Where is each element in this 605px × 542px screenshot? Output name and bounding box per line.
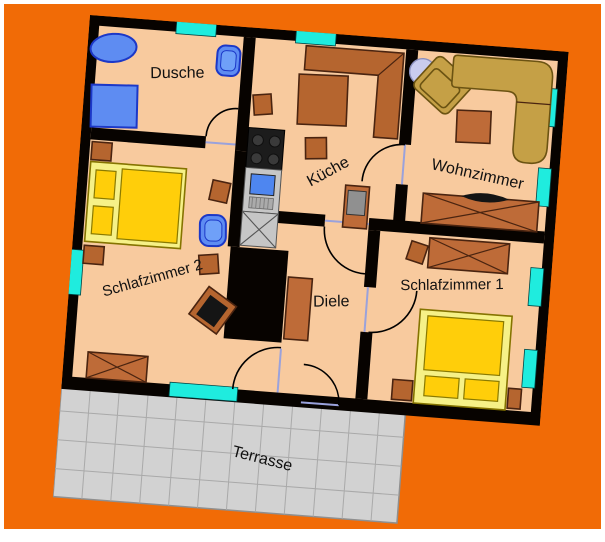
hall-cabinet-front [346, 190, 366, 215]
stove-burner-icon [268, 154, 280, 166]
pillow-icon [424, 376, 459, 399]
bed-mattress [424, 316, 504, 376]
chimney-block [224, 246, 289, 342]
stool-icon [253, 94, 272, 115]
shower-icon [91, 85, 138, 128]
pillow-icon [464, 379, 499, 402]
stove-icon [246, 128, 285, 171]
room-label-dusche: Dusche [150, 65, 205, 83]
nightstand-icon [507, 388, 521, 409]
pillow-icon [94, 170, 116, 199]
sink-basin-icon [250, 174, 275, 196]
hall-wardrobe-icon [284, 277, 313, 341]
coffee-table-icon [456, 110, 491, 143]
window-right-schlafzimmer1-2 [522, 349, 538, 388]
kitchen-table-icon [297, 74, 348, 126]
toilet-seat-icon [220, 50, 236, 71]
pillow-icon [91, 206, 113, 235]
window-right-schlafzimmer1-1 [528, 268, 544, 307]
window-right-wohnzimmer-2 [536, 168, 552, 207]
stool-icon [209, 180, 231, 203]
stove-burner-icon [252, 134, 264, 146]
stove-burner-icon [251, 152, 263, 164]
room-label-diele: Diele [313, 293, 350, 310]
floor-plan: Terrasse [52, 15, 568, 542]
stove-burner-icon [269, 136, 281, 148]
floor-plan-drawing: Terrasse [52, 15, 568, 542]
bed-mattress [117, 169, 182, 243]
room-label-schlafzimmer1: Schlafzimmer 1 [400, 276, 504, 294]
nightstand-icon [83, 245, 104, 264]
page: Terrasse [0, 0, 605, 533]
nightstand-icon [391, 379, 412, 400]
wash-basin-inner [205, 220, 222, 241]
stool-icon [305, 138, 326, 159]
nightstand-icon [91, 142, 112, 161]
